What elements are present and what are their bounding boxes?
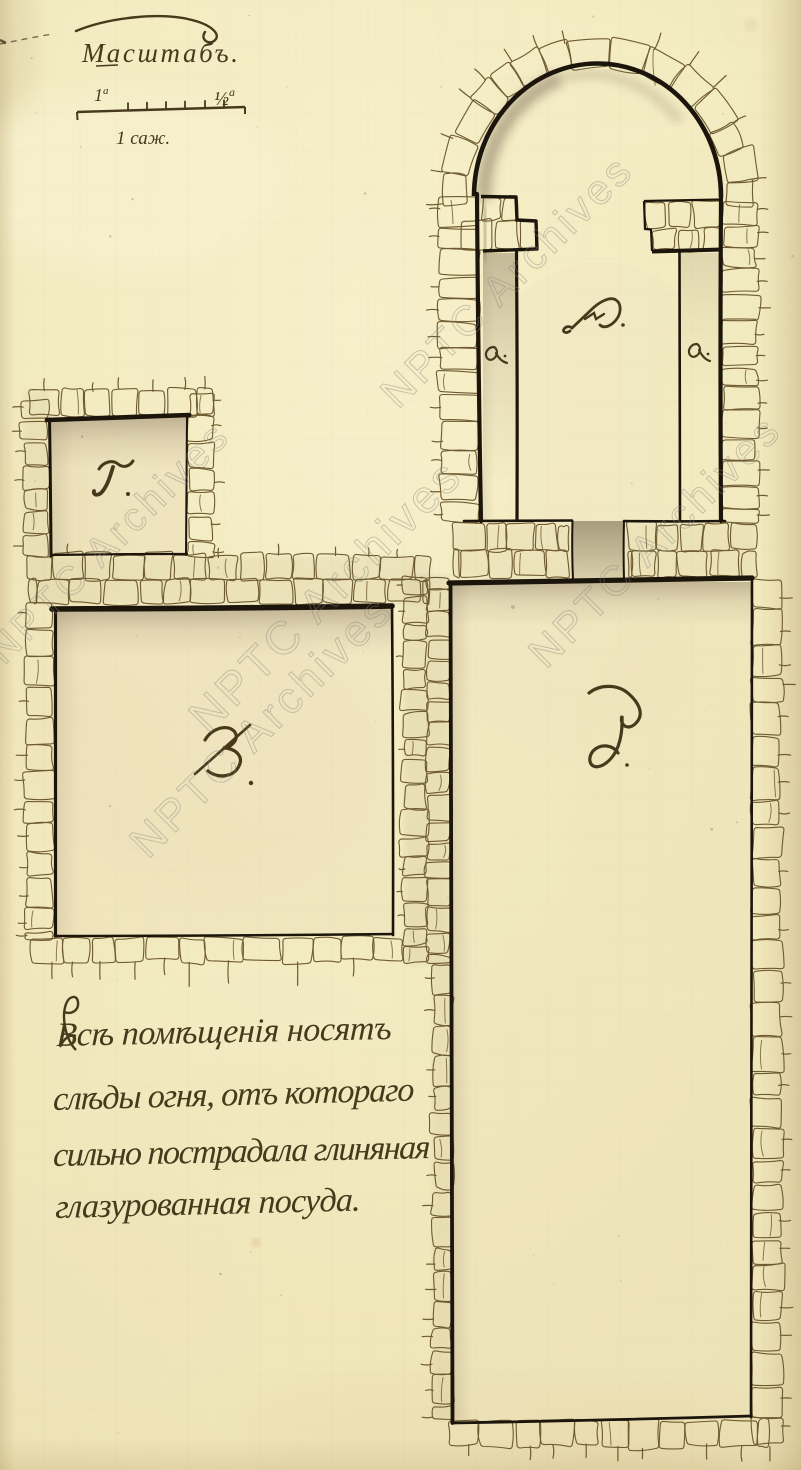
svg-text:глазурованная посуда.: глазурованная посуда. [55, 1182, 361, 1226]
svg-text:1 саж.: 1 саж. [116, 128, 170, 149]
svg-text:сильно пострадала глиняная: сильно пострадала глиняная [53, 1129, 431, 1174]
svg-text:Всѣ помѣщенія носятъ: Всѣ помѣщенія носятъ [56, 1010, 392, 1054]
